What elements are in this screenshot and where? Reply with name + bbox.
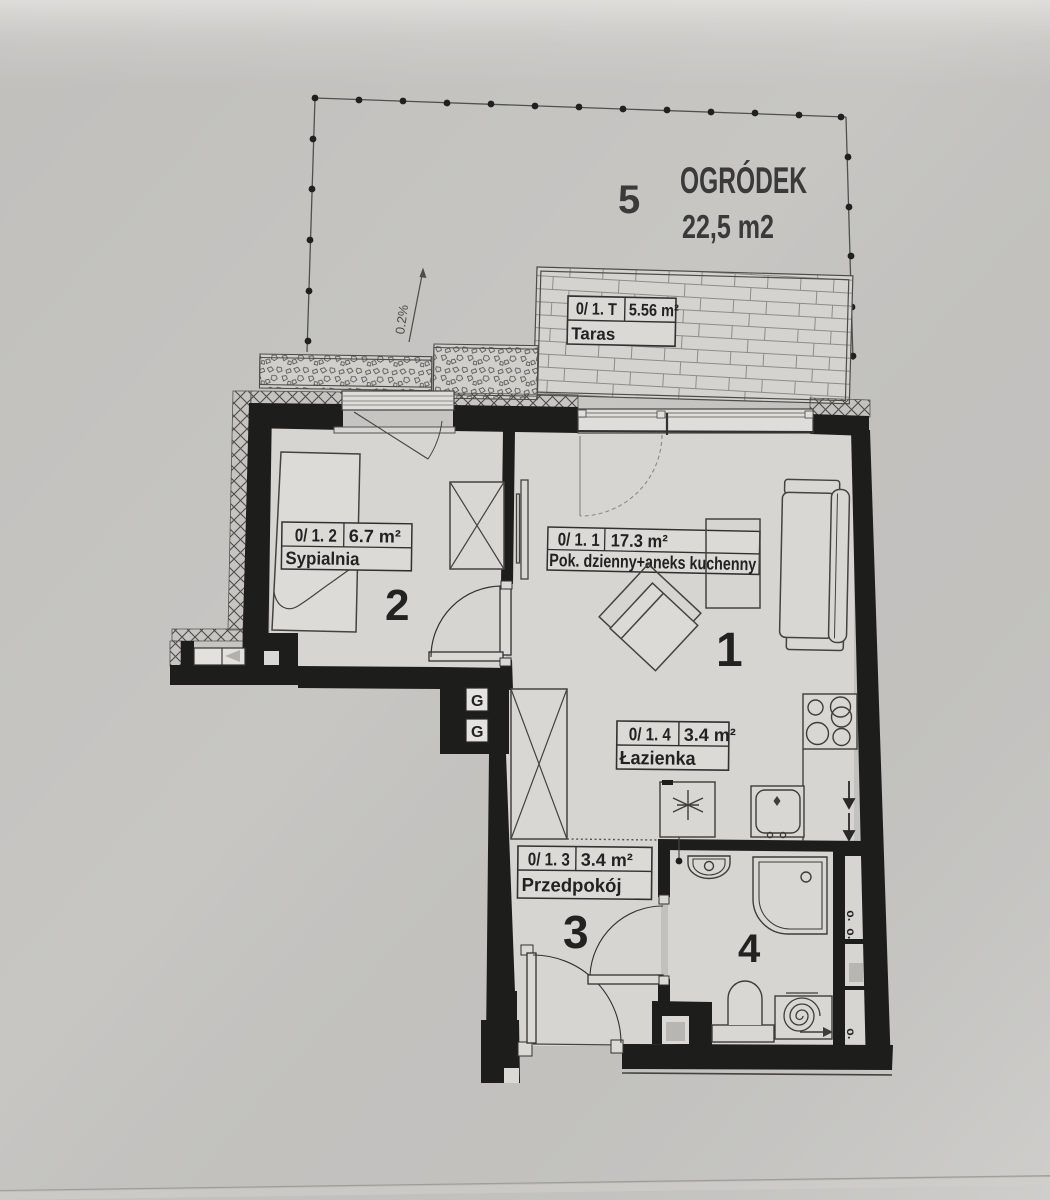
svg-text:3: 3 [563, 906, 589, 958]
svg-text:Taras: Taras [571, 324, 615, 344]
svg-text:OGRÓDEK: OGRÓDEK [680, 159, 807, 201]
svg-text:0/ 1. 4: 0/ 1. 4 [629, 724, 671, 744]
svg-text:4: 4 [738, 927, 761, 971]
svg-text:0/ 1. 3: 0/ 1. 3 [528, 849, 570, 869]
svg-text:G: G [471, 724, 483, 741]
svg-text:G: G [471, 693, 483, 710]
svg-text:2: 2 [385, 581, 409, 630]
svg-text:5.56 m²: 5.56 m² [629, 300, 680, 320]
svg-text:0/ 1. 2: 0/ 1. 2 [295, 525, 337, 546]
svg-text:1: 1 [716, 624, 743, 677]
svg-text:Sypialnia: Sypialnia [285, 548, 360, 569]
svg-text:0/ 1. 1: 0/ 1. 1 [558, 529, 600, 550]
svg-text:22,5 m2: 22,5 m2 [682, 208, 774, 245]
svg-text:3.4 m²: 3.4 m² [684, 725, 736, 746]
svg-text:6.7 m²: 6.7 m² [349, 526, 401, 547]
svg-text:Przedpokój: Przedpokój [521, 875, 621, 897]
svg-text:17.3 m²: 17.3 m² [611, 530, 668, 551]
svg-text:3.4 m²: 3.4 m² [581, 850, 633, 871]
svg-text:0/ 1. T: 0/ 1. T [576, 299, 618, 319]
svg-text:Łazienka: Łazienka [619, 748, 696, 770]
svg-text:5: 5 [618, 178, 640, 222]
